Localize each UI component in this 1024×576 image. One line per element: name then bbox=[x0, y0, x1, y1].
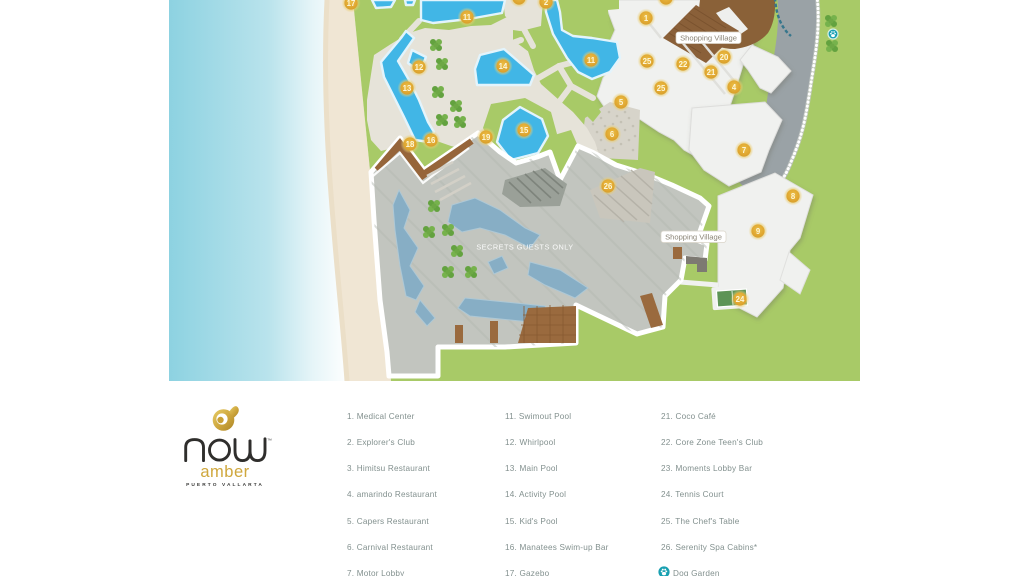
svg-text:4: 4 bbox=[732, 83, 737, 92]
svg-text:8: 8 bbox=[791, 192, 796, 201]
svg-text:25: 25 bbox=[657, 84, 666, 93]
svg-text:26: 26 bbox=[604, 182, 613, 191]
svg-text:13: 13 bbox=[403, 84, 412, 93]
svg-text:25: 25 bbox=[643, 57, 652, 66]
svg-text:18: 18 bbox=[406, 140, 415, 149]
svg-text:24: 24 bbox=[736, 295, 745, 304]
svg-text:22: 22 bbox=[679, 60, 688, 69]
svg-text:14: 14 bbox=[499, 62, 508, 71]
svg-text:Shopping Village: Shopping Village bbox=[665, 233, 722, 242]
svg-text:15: 15 bbox=[520, 126, 529, 135]
svg-text:12: 12 bbox=[415, 63, 424, 72]
svg-text:5: 5 bbox=[619, 98, 624, 107]
svg-text:21: 21 bbox=[707, 68, 716, 77]
svg-text:6: 6 bbox=[610, 130, 615, 139]
svg-text:11: 11 bbox=[587, 56, 596, 65]
svg-text:17: 17 bbox=[347, 0, 356, 8]
svg-text:19: 19 bbox=[482, 133, 491, 142]
svg-text:2: 2 bbox=[544, 0, 549, 7]
svg-text:PUERTO VALLARTA: PUERTO VALLARTA bbox=[186, 482, 264, 488]
svg-text:Shopping Village: Shopping Village bbox=[680, 34, 737, 43]
svg-text:1: 1 bbox=[644, 14, 649, 23]
svg-text:20: 20 bbox=[720, 53, 729, 62]
svg-text:16: 16 bbox=[427, 136, 436, 145]
svg-text:amber: amber bbox=[200, 463, 249, 481]
svg-text:SECRETS GUESTS ONLY: SECRETS GUESTS ONLY bbox=[476, 243, 573, 252]
svg-text:11: 11 bbox=[463, 13, 472, 22]
svg-text:9: 9 bbox=[756, 227, 761, 236]
svg-text:7: 7 bbox=[742, 146, 746, 155]
svg-text:™: ™ bbox=[267, 438, 272, 444]
